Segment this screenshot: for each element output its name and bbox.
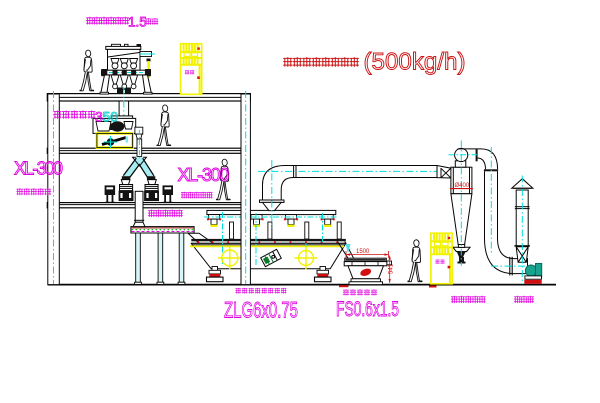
svg-text:1500: 1500 — [356, 249, 370, 255]
svg-text:Ø400: Ø400 — [455, 183, 470, 189]
svg-text:(500kg/h): (500kg/h) — [364, 49, 466, 76]
svg-text:50: 50 — [103, 109, 119, 125]
svg-text:ZLG6x0.75: ZLG6x0.75 — [224, 298, 298, 323]
svg-text:XL-300: XL-300 — [178, 165, 230, 185]
svg-text:FS0.6x1.5: FS0.6x1.5 — [336, 298, 399, 321]
svg-text:541: 541 — [389, 263, 395, 274]
svg-text:XL-300: XL-300 — [14, 159, 63, 179]
svg-text:1.5: 1.5 — [128, 14, 147, 29]
